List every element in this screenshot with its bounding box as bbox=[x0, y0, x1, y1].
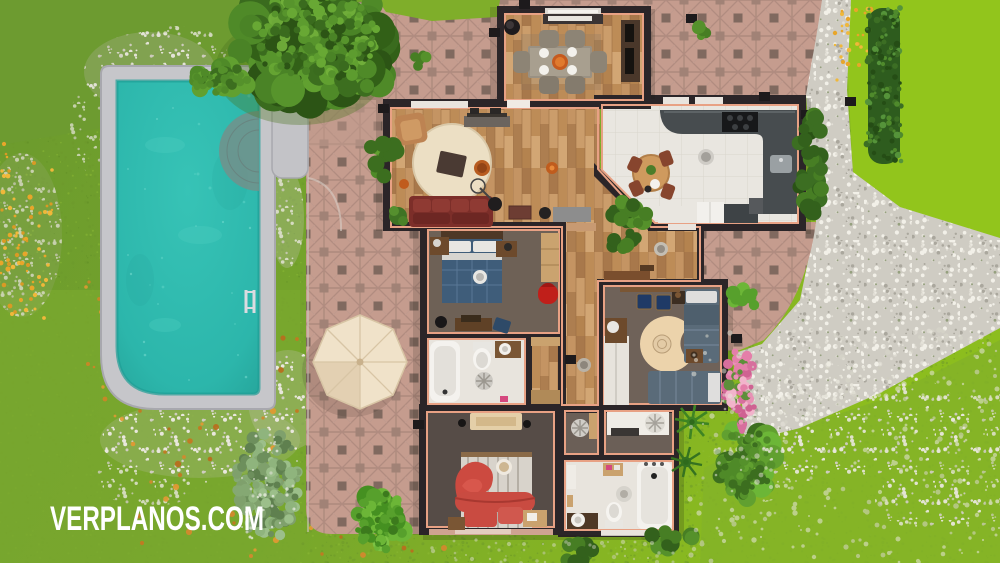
svg-text:VERPLANOS.COM: VERPLANOS.COM bbox=[50, 500, 264, 538]
